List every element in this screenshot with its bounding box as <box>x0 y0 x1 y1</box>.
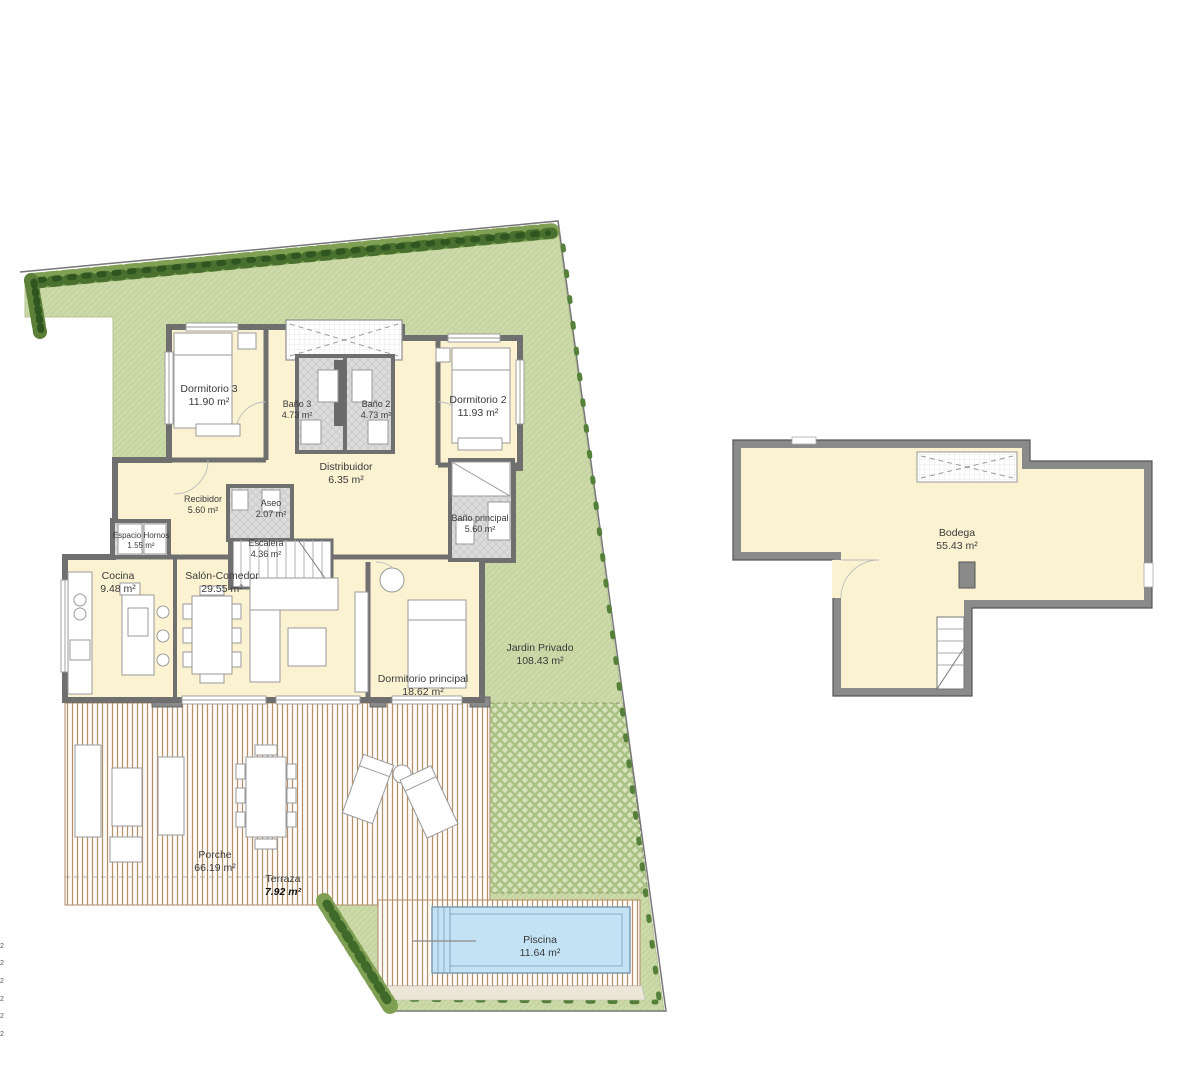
bodega-wall-notch <box>1144 563 1153 587</box>
bodega-skylight <box>917 452 1017 482</box>
label-jardin-privado: Jardin Privado 108.43 m² <box>506 642 573 668</box>
label-bano3: Baño 3 4.73 m² <box>282 399 313 421</box>
label-porche: Porche 66.19 m² <box>194 849 235 875</box>
label-recibidor: Recibidor 5.60 m² <box>184 494 222 516</box>
label-escalera: Escalera 4.36 m² <box>248 538 283 560</box>
floor-plan-drawing <box>0 0 1200 1082</box>
label-bano-principal: Baño principal 5.60 m² <box>451 513 508 535</box>
margin-mark: 2 <box>0 1013 4 1020</box>
bodega-plan <box>733 437 1153 696</box>
label-dormitorio3: Dormitorio 3 11.90 m² <box>180 383 237 409</box>
label-aseo: Aseo 2.07 m² <box>256 498 287 520</box>
label-espacio-hornos: Espacio Hornos 1.55 m² <box>113 531 169 551</box>
margin-mark: 2 <box>0 978 4 985</box>
margin-mark: 2 <box>0 960 4 967</box>
bodega-door-opening <box>832 560 842 598</box>
label-distribuidor: Distribuidor 6.35 m² <box>319 461 372 487</box>
label-bano2: Baño 2 4.73 m² <box>361 399 392 421</box>
margin-mark: 2 <box>0 996 4 1003</box>
margin-mark: 2 <box>0 943 4 950</box>
bodega-stairs <box>937 617 964 689</box>
bodega-window-gap <box>792 437 816 444</box>
floor-plan-canvas: Dormitorio 3 11.90 m² Baño 3 4.73 m² Bañ… <box>0 0 1200 1082</box>
label-bodega: Bodega 55.43 m² <box>936 527 977 553</box>
pool-gravel-strip <box>378 986 645 1000</box>
margin-mark: 2 <box>0 1031 4 1038</box>
label-piscina: Piscina 11.64 m² <box>520 934 561 960</box>
label-dormitorio2: Dormitorio 2 11.93 m² <box>449 394 506 420</box>
label-terraza: Terraza 7.92 m² <box>265 873 301 899</box>
checkered-lawn <box>490 703 648 893</box>
label-salon-comedor: Salón-Comedor 29.55 m² <box>185 570 259 596</box>
bodega-pillar <box>959 562 975 588</box>
label-dormitorio-principal: Dormitorio principal 18.62 m² <box>378 673 468 699</box>
label-cocina: Cocina 9.48 m² <box>100 570 136 596</box>
